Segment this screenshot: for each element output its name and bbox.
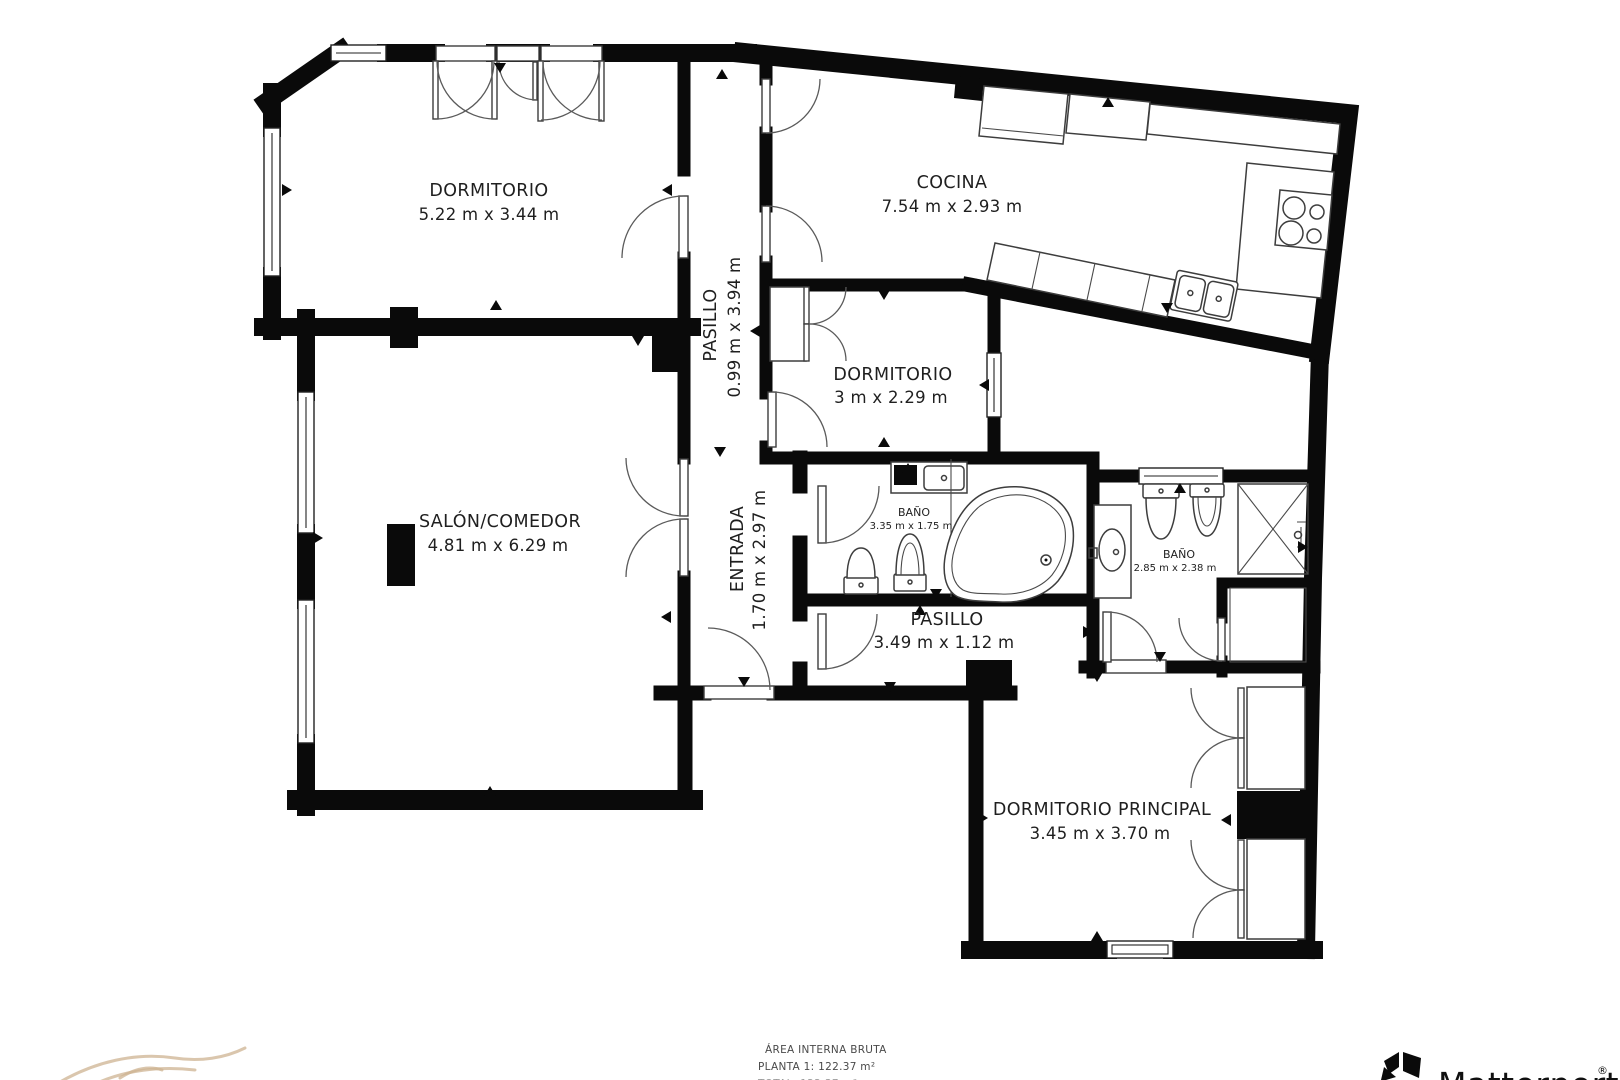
door-bath2 — [1103, 612, 1166, 673]
window-salon-upper — [298, 392, 314, 533]
double-door-salon — [626, 458, 688, 577]
matterport-registered-mark: ® — [1597, 1064, 1608, 1077]
dims-pasillo2: 3.49 m x 1.12 m — [874, 633, 1015, 652]
matterport-logo-text: Matterport — [1438, 1065, 1619, 1080]
dims-pasillo1: 0.99 m x 3.94 m — [725, 257, 744, 398]
window-principal-bottom — [1107, 941, 1173, 958]
door-kitchen-upper — [762, 79, 820, 133]
dims-entrada: 1.70 m x 2.97 m — [750, 490, 769, 631]
window-bedroom2-right — [987, 353, 1001, 417]
window-bedroom1-left — [264, 128, 280, 276]
windows — [264, 45, 1223, 958]
kitchen-pier — [954, 76, 984, 101]
wardrobe-bedroom2 — [770, 287, 846, 361]
bath1-toilet — [844, 548, 878, 594]
label-principal: DORMITORIO PRINCIPAL — [993, 800, 1211, 820]
label-entrada: ENTRADA — [728, 506, 748, 592]
floor-plan-canvas: DORMITORIO 5.22 m x 3.44 m COCINA 7.54 m… — [0, 0, 1620, 1080]
door-kitchen-lower — [762, 206, 822, 262]
label-cocina: COCINA — [917, 173, 988, 193]
dims-dormitorio2: 3 m x 2.29 m — [834, 388, 948, 407]
dims-salon: 4.81 m x 6.29 m — [428, 536, 569, 555]
door-hallway2 — [818, 614, 877, 669]
bath1-bidet — [894, 534, 926, 591]
door-bath1 — [818, 486, 879, 543]
bath1-sink — [891, 462, 967, 493]
window-salon-lower — [298, 600, 314, 743]
bath2-vanity — [1089, 505, 1131, 598]
label-dormitorio2: DORMITORIO — [833, 365, 952, 385]
dims-cocina: 7.54 m x 2.93 m — [882, 197, 1023, 216]
salon-pillar — [387, 524, 415, 586]
label-dormitorio1: DORMITORIO — [429, 181, 548, 201]
floor-plan-page: DORMITORIO 5.22 m x 3.44 m COCINA 7.54 m… — [0, 0, 1620, 1080]
shower — [1238, 484, 1308, 574]
stove — [1275, 190, 1332, 250]
dims-dormitorio1: 5.22 m x 3.44 m — [419, 205, 560, 224]
dims-bano2: 2.85 m x 2.38 m — [1134, 563, 1217, 574]
bath2-bidet — [1190, 484, 1224, 536]
closet-doors-bedroom1 — [433, 46, 604, 121]
footer-area-planta: PLANTA 1: 122.37 m² — [758, 1061, 875, 1073]
matterport-logo: Matterport ® — [1381, 1052, 1619, 1080]
footer: ÁREA INTERNA BRUTA PLANTA 1: 122.37 m² T… — [757, 1043, 887, 1080]
partner-logo — [60, 1048, 245, 1080]
dims-principal: 3.45 m x 3.70 m — [1030, 824, 1171, 843]
window-bedroom1-top — [331, 45, 386, 61]
kitchen-sink — [1170, 270, 1239, 322]
kitchen-fixtures — [979, 86, 1340, 322]
label-bano1: BAÑO — [898, 506, 930, 519]
matterport-logo-icon — [1381, 1052, 1421, 1080]
door-bedroom2 — [768, 392, 827, 447]
closet-room — [1230, 588, 1306, 662]
window-bath2-top — [1139, 468, 1223, 484]
bath2-toilet — [1143, 484, 1179, 539]
label-pasillo1: PASILLO — [701, 288, 721, 361]
footer-area-title: ÁREA INTERNA BRUTA — [765, 1043, 887, 1056]
label-bano2: BAÑO — [1163, 548, 1195, 561]
dims-bano1: 3.35 m x 1.75 m — [870, 521, 953, 532]
door-closet-room — [1179, 618, 1225, 661]
label-pasillo2: PASILLO — [910, 610, 983, 630]
label-salon: SALÓN/COMEDOR — [419, 510, 581, 532]
door-main-entrance — [704, 628, 774, 699]
door-bedroom1 — [622, 196, 688, 258]
